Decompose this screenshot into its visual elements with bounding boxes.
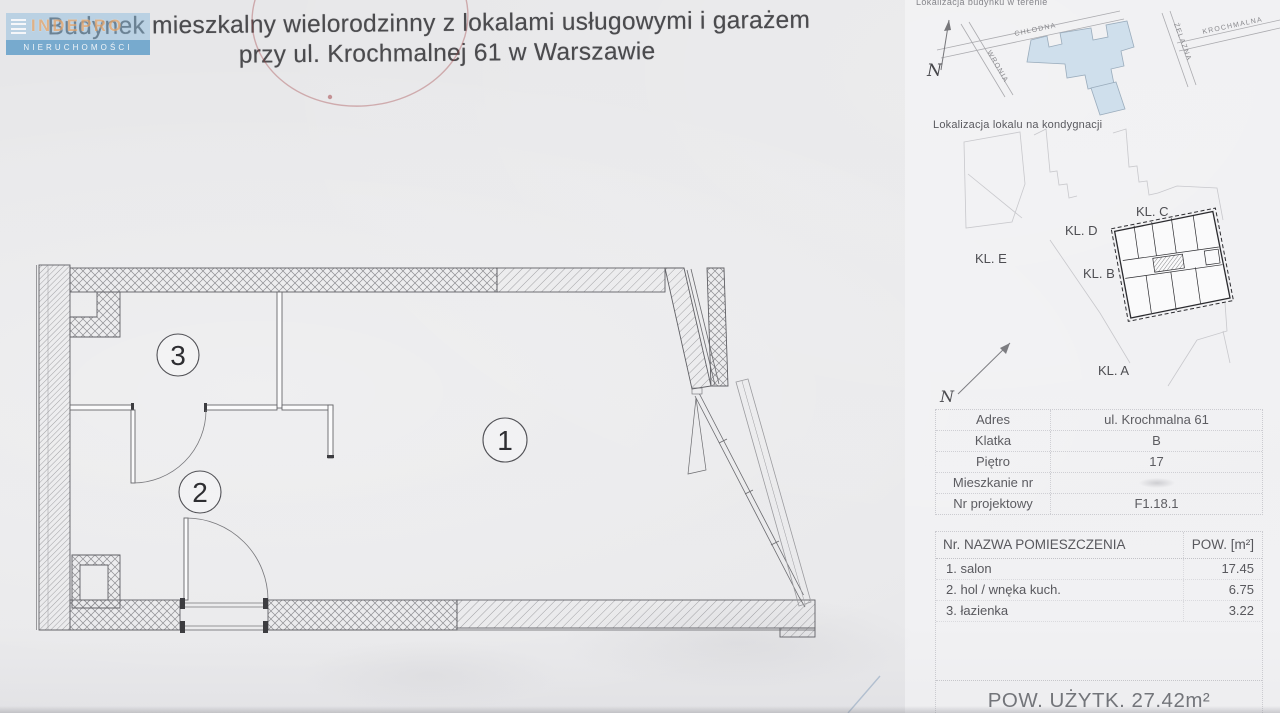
site-location-map: CHŁODNA WRONIA ŻELAZNA KROCHMALNA N bbox=[915, 0, 1280, 118]
street-zelazna: ŻELAZNA bbox=[1172, 22, 1194, 63]
label-kl-b: KL. B bbox=[1083, 266, 1115, 281]
room-area-cell: 17.45 bbox=[1184, 559, 1262, 579]
street-wronia: WRONIA bbox=[985, 50, 1009, 85]
detail-value-pietro: 17 bbox=[1051, 452, 1262, 472]
north-label: N bbox=[926, 61, 943, 81]
room-area-cell: 3.22 bbox=[1184, 601, 1262, 621]
building-footprint-annex bbox=[1091, 82, 1125, 115]
table-row: Klatka B bbox=[936, 431, 1262, 452]
north-arrow-floor: N bbox=[939, 343, 1010, 406]
erased-value-smudge bbox=[1139, 478, 1175, 488]
table-row: 3. łazienka 3.22 bbox=[936, 601, 1262, 622]
room-nr: 1. bbox=[946, 561, 957, 576]
detail-value-projektowy: F1.18.1 bbox=[1051, 494, 1262, 514]
room-name: salon bbox=[960, 561, 991, 576]
label-kl-e: KL. E bbox=[975, 251, 1007, 266]
room-number-circles: 1 2 3 bbox=[157, 334, 527, 513]
label-kl-a: KL. A bbox=[1098, 363, 1129, 378]
room-label-salon: 1 bbox=[497, 425, 513, 456]
table-row: 2. hol / wnęka kuch. 6.75 bbox=[936, 580, 1262, 601]
agency-logo-top: INDEPRO bbox=[6, 13, 150, 40]
rooms-header-area: POW. [m²] bbox=[1184, 532, 1262, 558]
room-name-cell: 1. salon bbox=[936, 559, 1184, 579]
room-nr: 2. bbox=[946, 582, 957, 597]
room-name: hol / wnęka kuch. bbox=[960, 582, 1060, 597]
unit-details-table: Adres ul. Krochmalna 61 Klatka B Piętro … bbox=[935, 409, 1263, 515]
logo-stripes-icon bbox=[11, 19, 26, 34]
north-arrow: N bbox=[926, 20, 951, 81]
detail-label-projektowy: Nr projektowy bbox=[936, 494, 1051, 514]
room-name-cell: 3. łazienka bbox=[936, 601, 1184, 621]
scanned-floor-plan-page: Budynek mieszkalny wielorodzinny z lokal… bbox=[0, 0, 1280, 713]
usable-area-total: POW. UŻYTK. 27.42m² bbox=[936, 680, 1262, 713]
room-nr: 3. bbox=[946, 603, 957, 618]
apartment-floor-plan-drawing: 1 2 3 bbox=[35, 255, 825, 640]
agency-name: INDEPRO bbox=[31, 17, 124, 36]
detail-label-mieszkanie: Mieszkanie nr bbox=[936, 473, 1051, 493]
floor-location-diagram: KL. C KL. D KL. E KL. B KL. A N bbox=[930, 128, 1280, 406]
table-row: 1. salon 17.45 bbox=[936, 559, 1262, 580]
detail-value-klatka: B bbox=[1051, 431, 1262, 451]
room-label-hol: 2 bbox=[192, 477, 208, 508]
detail-label-pietro: Piętro bbox=[936, 452, 1051, 472]
label-kl-d: KL. D bbox=[1065, 223, 1098, 238]
table-empty-space bbox=[936, 622, 1262, 680]
highlighted-unit-kl-b bbox=[1110, 207, 1234, 321]
detail-value-mieszkanie bbox=[1051, 473, 1262, 493]
table-row: Nr projektowy F1.18.1 bbox=[936, 494, 1262, 514]
rooms-header-name: Nr. NAZWA POMIESZCZENIA bbox=[936, 532, 1184, 558]
room-area-cell: 6.75 bbox=[1184, 580, 1262, 600]
agency-logo: INDEPRO NIERUCHOMOŚCI bbox=[6, 13, 150, 55]
entrance-door bbox=[180, 518, 268, 633]
detail-label-adres: Adres bbox=[936, 410, 1051, 430]
detail-label-klatka: Klatka bbox=[936, 431, 1051, 451]
red-stamp-mark bbox=[230, 0, 500, 115]
room-name-cell: 2. hol / wnęka kuch. bbox=[936, 580, 1184, 600]
table-row: Mieszkanie nr bbox=[936, 473, 1262, 494]
detail-value-adres: ul. Krochmalna 61 bbox=[1051, 410, 1262, 430]
street-chlodna: CHŁODNA bbox=[1014, 22, 1057, 38]
outer-walls bbox=[37, 265, 816, 637]
agency-tagline: NIERUCHOMOŚCI bbox=[6, 40, 150, 55]
room-name: łazienka bbox=[960, 603, 1008, 618]
scan-smudge bbox=[300, 640, 560, 710]
pen-mark bbox=[838, 668, 888, 713]
table-row: Piętro 17 bbox=[936, 452, 1262, 473]
label-kl-c: KL. C bbox=[1136, 204, 1169, 219]
interior-shafts bbox=[70, 292, 120, 608]
rooms-area-table: Nr. NAZWA POMIESZCZENIA POW. [m²] 1. sal… bbox=[935, 531, 1263, 713]
rooms-table-header: Nr. NAZWA POMIESZCZENIA POW. [m²] bbox=[936, 532, 1262, 559]
table-row: Adres ul. Krochmalna 61 bbox=[936, 410, 1262, 431]
north-label-floor: N bbox=[939, 387, 955, 406]
room-label-lazienka: 3 bbox=[170, 340, 186, 371]
window-wall-angled bbox=[687, 269, 805, 607]
